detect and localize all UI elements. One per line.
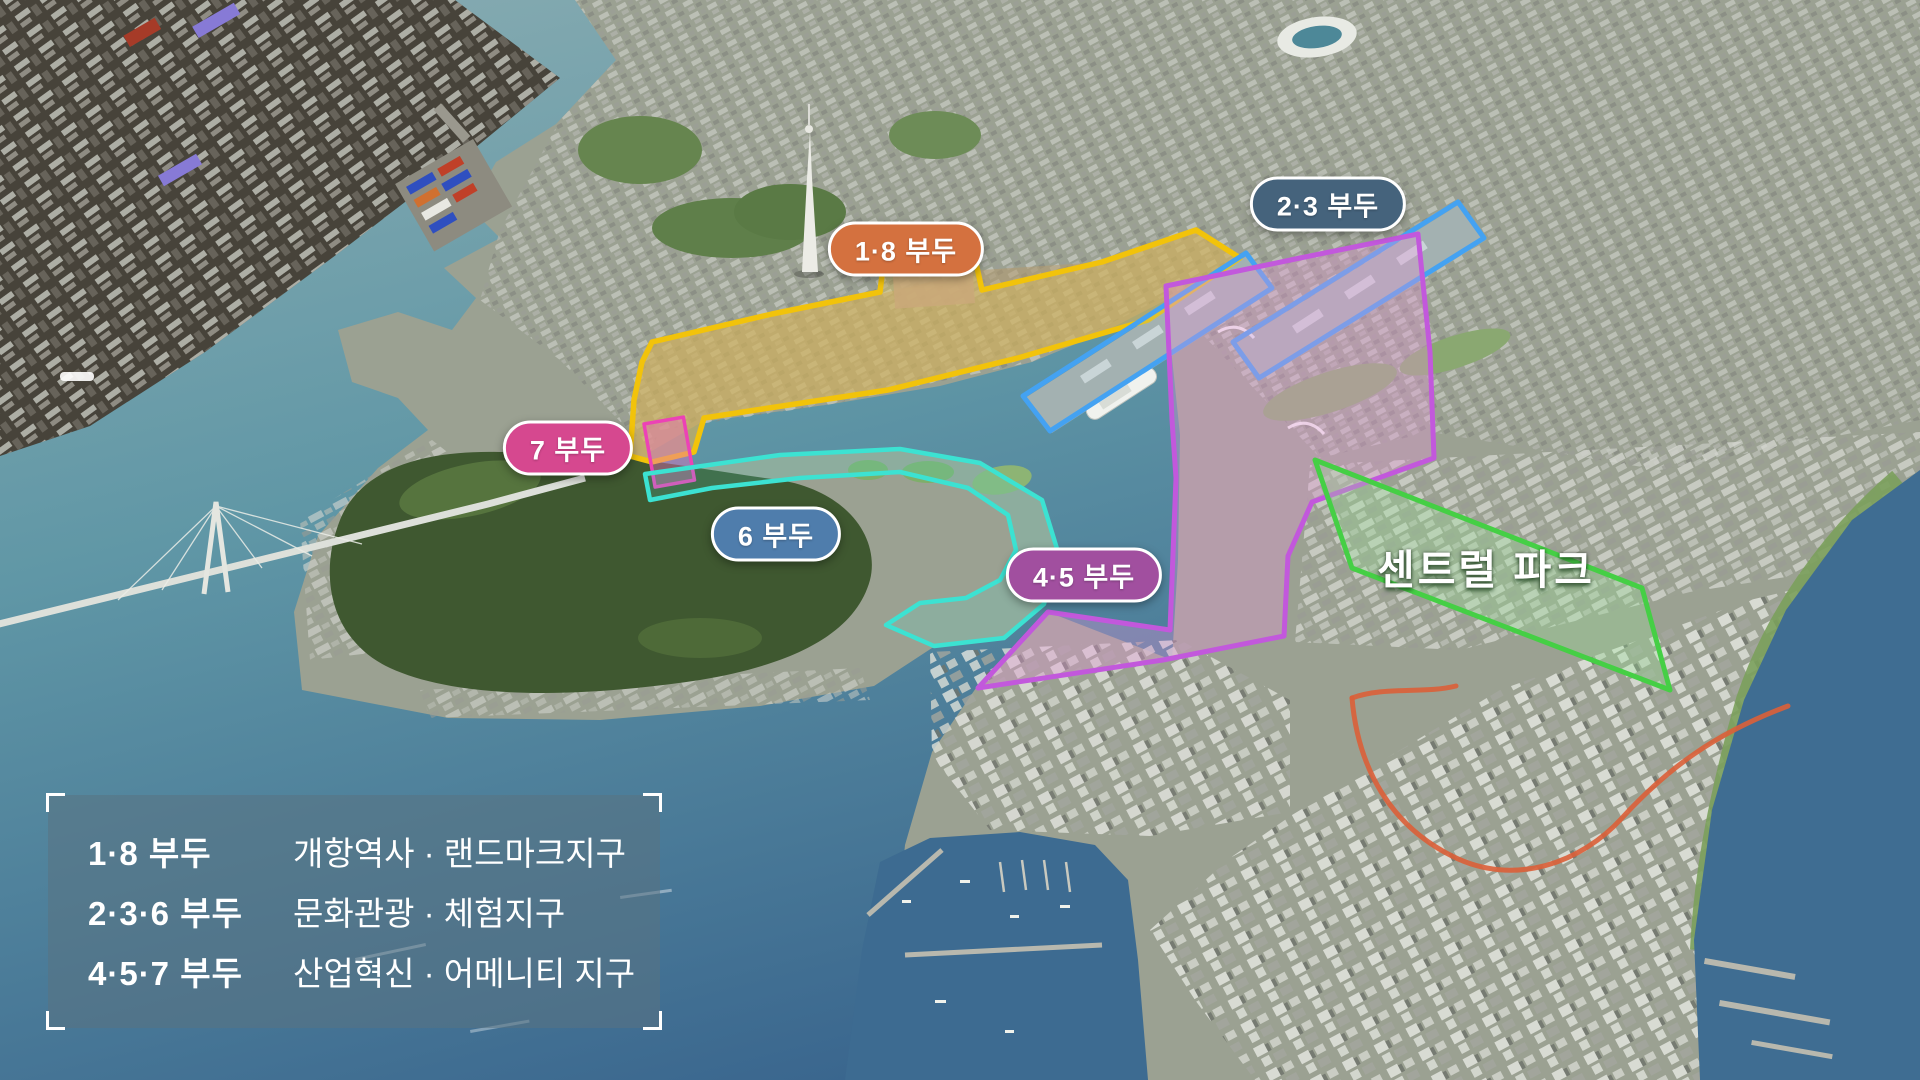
zone-label-pier23: 2·3 부두 [1250,177,1406,232]
legend-panel: 1·8 부두 개항역사 · 랜드마크지구 2·3·6 부두 문화관광 · 체험지… [48,795,660,1028]
legend-term: 4·5·7 부두 [88,947,293,995]
legend-corner-mark [46,793,65,812]
central-park-label: 센트럴 파크 [1377,536,1595,596]
zone-label-pier45: 4·5 부두 [1006,548,1162,603]
legend-row: 1·8 부두 개항역사 · 랜드마크지구 [88,821,660,881]
legend-corner-mark [643,793,662,812]
legend-desc: 개항역사 · 랜드마크지구 [293,827,660,875]
zone-label-pier7: 7 부두 [503,421,633,476]
legend-row: 4·5·7 부두 산업혁신 · 어메니티 지구 [88,941,660,1001]
aerial-plan-view: 1·8 부두 2·3 부두 7 부두 6 부두 4·5 부두 센트럴 파크 1·… [0,0,1920,1080]
legend-term: 1·8 부두 [88,827,293,875]
zone-label-pier6: 6 부두 [711,507,841,562]
zone-label-pier18: 1·8 부두 [828,222,984,277]
legend-desc: 산업혁신 · 어메니티 지구 [293,947,660,995]
legend-desc: 문화관광 · 체험지구 [293,887,660,935]
legend-corner-mark [643,1011,662,1030]
legend-term: 2·3·6 부두 [88,887,293,935]
legend-row: 2·3·6 부두 문화관광 · 체험지구 [88,881,660,941]
marina-bay [845,832,1148,1080]
legend-corner-mark [46,1011,65,1030]
ship [60,372,94,381]
